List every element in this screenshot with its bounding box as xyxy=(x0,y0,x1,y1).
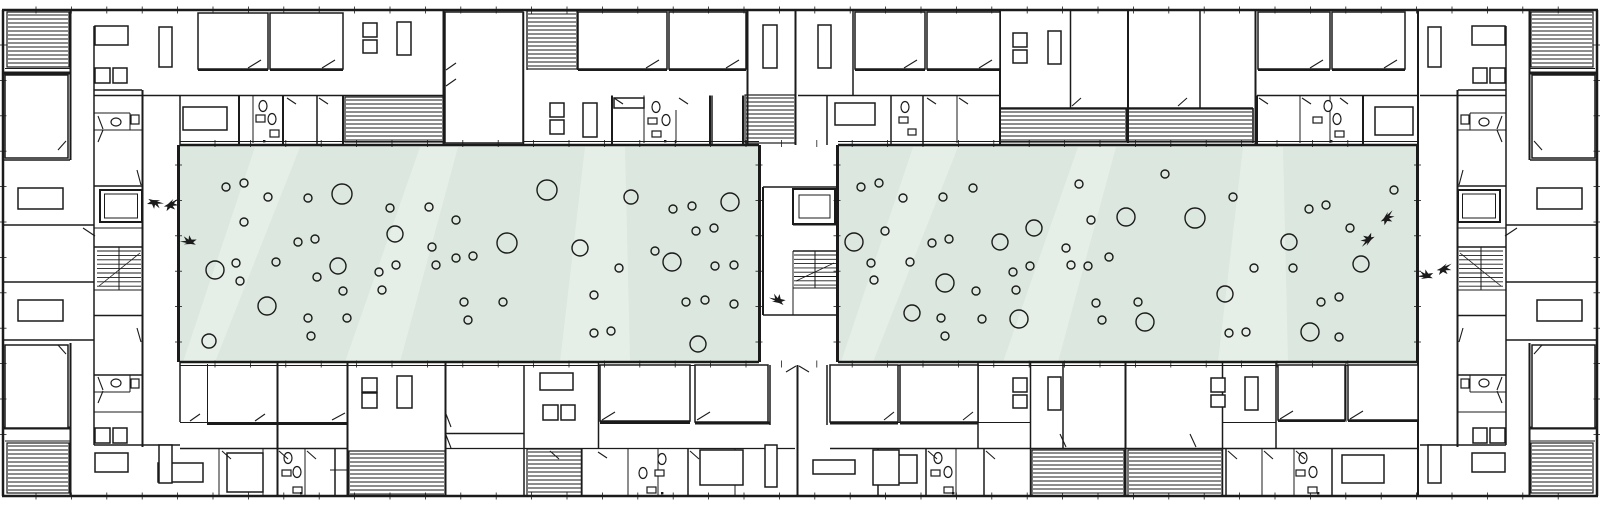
room-or-furniture-rect xyxy=(830,365,898,422)
room-or-furniture-rect xyxy=(113,428,127,443)
louver-hatch xyxy=(345,97,443,142)
room-or-furniture-rect xyxy=(1048,31,1061,64)
room-or-furniture-rect xyxy=(397,22,411,55)
elevator xyxy=(100,190,142,222)
room-or-furniture-rect xyxy=(1296,470,1305,476)
room-or-furniture-rect xyxy=(1211,378,1225,392)
fixture-dot xyxy=(952,492,954,494)
room-or-furniture-rect xyxy=(1461,115,1469,124)
room-or-furniture-rect xyxy=(1335,131,1344,137)
room-or-furniture-rect xyxy=(647,487,656,493)
louver-hatch xyxy=(349,451,445,496)
room-or-furniture-rect xyxy=(835,103,875,125)
room-or-furniture-rect xyxy=(1013,378,1027,392)
room-or-furniture-rect xyxy=(198,13,268,69)
fixture-dot xyxy=(1317,492,1319,494)
louver-hatch xyxy=(527,449,582,496)
room-or-furniture-rect xyxy=(113,68,127,83)
room-or-furniture-rect xyxy=(944,487,953,493)
room-or-furniture-rect xyxy=(1013,50,1027,63)
louver-hatch xyxy=(1032,450,1124,496)
room-or-furniture-rect xyxy=(540,373,573,390)
room-or-furniture-rect xyxy=(1211,395,1225,407)
floor-plan xyxy=(0,0,1600,510)
room-or-furniture-rect xyxy=(655,470,664,476)
room-or-furniture-rect xyxy=(5,75,68,158)
room-or-furniture-rect xyxy=(270,130,279,137)
room-or-furniture-rect xyxy=(227,453,263,492)
room-or-furniture-rect xyxy=(131,379,139,388)
room-or-furniture-rect xyxy=(1048,377,1061,410)
louver-hatch xyxy=(527,11,577,69)
elevator xyxy=(1458,190,1500,222)
room-or-furniture-rect xyxy=(1375,107,1413,135)
room-or-furniture-rect xyxy=(1313,117,1322,123)
hatch-border xyxy=(7,443,69,493)
room-or-furniture-rect xyxy=(362,393,377,408)
room-or-furniture-rect xyxy=(700,450,743,485)
room-or-furniture-rect xyxy=(1490,428,1505,443)
toilet-fixture xyxy=(111,379,121,387)
room-or-furniture-rect xyxy=(799,195,830,218)
room-or-furniture-rect xyxy=(1332,12,1405,69)
room-or-furniture-rect xyxy=(695,365,768,422)
room-or-furniture-rect xyxy=(363,40,377,53)
room-or-furniture-rect xyxy=(159,27,172,67)
room-or-furniture-rect xyxy=(1473,428,1487,443)
toilet-fixture xyxy=(662,115,670,126)
room-or-furniture-rect xyxy=(1463,194,1496,218)
louver-hatch xyxy=(7,12,69,67)
room-or-furniture-rect xyxy=(873,450,899,485)
toilet-fixture xyxy=(284,453,292,464)
room-or-furniture-rect xyxy=(1258,12,1330,69)
room-or-furniture-rect xyxy=(818,25,831,68)
toilet-fixture xyxy=(658,454,666,465)
room-or-furniture-rect xyxy=(95,428,110,443)
louver-hatch xyxy=(745,95,795,143)
hatch-border xyxy=(1531,443,1593,493)
toilet-fixture xyxy=(293,467,301,478)
room-or-furniture-rect xyxy=(900,365,978,422)
toilet-fixture xyxy=(111,118,121,126)
room-or-furniture-rect xyxy=(131,115,139,124)
room-or-furniture-rect xyxy=(1245,377,1258,410)
room-or-furniture-rect xyxy=(256,115,265,122)
room-or-furniture-rect xyxy=(1013,395,1027,408)
fixture-dot xyxy=(661,492,663,494)
room-or-furniture-rect xyxy=(583,103,597,137)
fixture-dot xyxy=(664,140,666,142)
fixture-dot xyxy=(300,492,302,494)
room-or-furniture-rect xyxy=(95,68,110,83)
room-or-furniture-rect xyxy=(1461,379,1469,388)
room-or-furniture-rect xyxy=(270,13,343,69)
room-or-furniture-rect xyxy=(445,12,523,143)
toilet-fixture xyxy=(944,467,952,478)
louver-hatch xyxy=(1128,450,1222,496)
hatch-border xyxy=(1000,109,1126,142)
room-or-furniture-rect xyxy=(159,445,172,483)
toilet-fixture xyxy=(639,468,647,479)
toilet-fixture xyxy=(259,101,267,112)
toilet-fixture xyxy=(1479,118,1489,126)
room-or-furniture-rect xyxy=(765,445,777,487)
room-or-furniture-rect xyxy=(1532,345,1595,428)
louver-hatch xyxy=(1531,443,1593,493)
hatch-border xyxy=(1127,109,1253,142)
toilet-fixture xyxy=(1324,101,1332,112)
room-or-furniture-rect xyxy=(543,405,558,420)
floor-plan-canvas xyxy=(0,0,1600,510)
room-or-furniture-rect xyxy=(561,405,575,420)
fixture-dot xyxy=(263,140,265,142)
room-or-furniture-rect xyxy=(855,12,925,69)
room-or-furniture-rect xyxy=(1348,365,1418,420)
toilet-fixture xyxy=(1309,467,1317,478)
room-or-furniture-rect xyxy=(1537,188,1582,209)
room-or-furniture-rect xyxy=(908,129,916,135)
toilet-fixture xyxy=(901,102,909,113)
room-or-furniture-rect xyxy=(95,26,128,45)
room-or-furniture-rect xyxy=(1472,453,1505,472)
toilet-fixture xyxy=(652,102,660,113)
room-or-furniture-rect xyxy=(763,25,777,68)
room-or-furniture-rect xyxy=(362,378,377,392)
room-or-furniture-rect xyxy=(5,345,68,428)
room-or-furniture-rect xyxy=(282,470,291,476)
room-or-furniture-rect xyxy=(614,98,644,108)
room-or-furniture-rect xyxy=(1537,300,1582,321)
room-or-furniture-rect xyxy=(1472,26,1505,45)
louver-hatch xyxy=(1000,109,1126,142)
toilet-fixture xyxy=(1333,114,1341,125)
room-or-furniture-rect xyxy=(1473,68,1487,83)
room-or-furniture-rect xyxy=(1308,487,1317,493)
toilet-fixture xyxy=(1479,379,1489,387)
room-or-furniture-rect xyxy=(183,107,227,130)
hatch-border xyxy=(527,11,577,69)
louver-hatch xyxy=(1127,109,1253,142)
room-or-furniture-rect xyxy=(95,453,128,472)
room-or-furniture-rect xyxy=(397,376,412,408)
room-or-furniture-rect xyxy=(578,12,667,69)
room-or-furniture-rect xyxy=(1428,445,1441,483)
room-or-furniture-rect xyxy=(1428,27,1441,67)
fixture-dot xyxy=(1330,140,1332,142)
room-or-furniture-rect xyxy=(18,300,63,321)
room-or-furniture-rect xyxy=(1278,365,1345,420)
room-or-furniture-rect xyxy=(1532,75,1595,158)
room-or-furniture-rect xyxy=(1490,68,1505,83)
room-or-furniture-rect xyxy=(927,12,1000,69)
room-or-furniture-rect xyxy=(1342,455,1384,483)
room-or-furniture-rect xyxy=(550,120,564,134)
room-or-furniture-rect xyxy=(813,460,855,474)
room-or-furniture-rect xyxy=(669,12,746,69)
toilet-fixture xyxy=(268,114,276,125)
room-or-furniture-rect xyxy=(899,117,908,123)
room-or-furniture-rect xyxy=(652,131,661,137)
louver-hatch xyxy=(1531,12,1593,67)
room-or-furniture-rect xyxy=(550,103,564,117)
room-or-furniture-rect xyxy=(648,118,657,124)
room-or-furniture-rect xyxy=(105,194,138,218)
room-or-furniture-rect xyxy=(363,23,377,37)
elevator xyxy=(793,189,835,224)
room-or-furniture-rect xyxy=(18,188,63,209)
room-or-furniture-rect xyxy=(931,470,940,476)
louver-hatch xyxy=(7,443,69,493)
room-or-furniture-rect xyxy=(1013,33,1027,47)
